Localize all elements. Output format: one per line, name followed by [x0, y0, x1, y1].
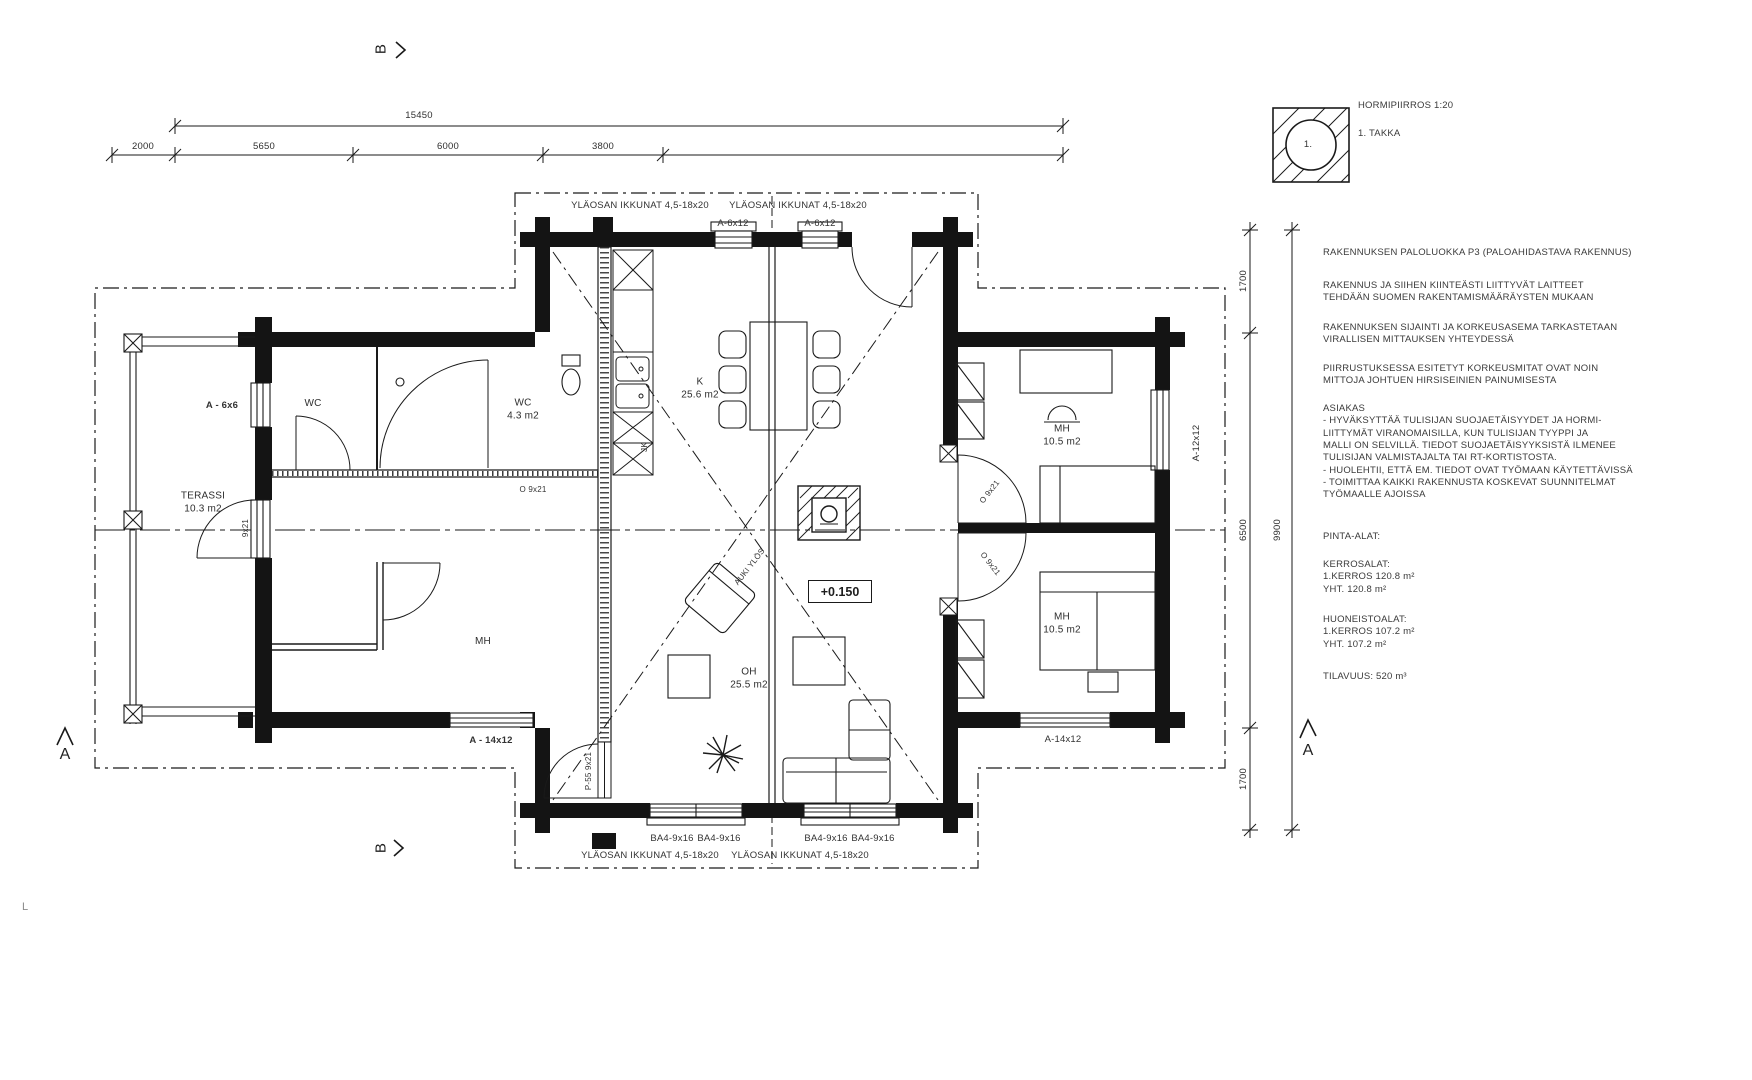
window-label-a14x12-left: A - 14x12 — [469, 735, 512, 747]
window-label-a14x12-right: A-14x12 — [1045, 734, 1082, 746]
section-marker-arrows — [57, 42, 1316, 856]
upper-windows-note-top-right: YLÄOSAN IKKUNAT 4,5-18x20 — [729, 200, 867, 212]
section-a-left-label: A — [60, 745, 71, 765]
section-a-right-arrow — [1300, 720, 1316, 738]
section-b-bottom-arrow — [394, 840, 403, 856]
dimension-lines-right — [1242, 222, 1300, 838]
room-label-wc1: WC — [304, 398, 321, 411]
dim-seg-6500: 6500 — [1238, 519, 1250, 541]
room-label-mh-left: MH — [475, 636, 491, 649]
dim-seg-1700-bottom: 1700 — [1238, 768, 1250, 790]
section-b-top-arrow — [396, 42, 405, 58]
door-label-o9x21-wc: O 9x21 — [520, 485, 547, 495]
chimney-detail-title: HORMIPIIRROS 1:20 — [1358, 100, 1453, 112]
room-label-mh-bottom-right: MH10.5 m2 — [1043, 612, 1081, 637]
window-label-ba4-4: BA4-9x16 — [851, 833, 894, 845]
window-label-a6x6: A - 6x6 — [206, 400, 238, 412]
note-heights: PIIRRUSTUKSESSA ESITETYT KORKEUSMITAT OV… — [1323, 363, 1653, 388]
dim-seg-3800: 3800 — [592, 141, 614, 153]
fridge-label: JK — [640, 442, 650, 452]
section-b-top-label: B — [373, 44, 392, 54]
dim-seg-6000: 6000 — [437, 141, 459, 153]
dim-seg-2000: 2000 — [132, 141, 154, 153]
section-b-bottom-label: B — [373, 843, 392, 853]
fireplace — [798, 486, 860, 540]
note-client: ASIAKAS - HYVÄKSYTTÄÄ TULISIJAN SUOJAETÄ… — [1323, 403, 1653, 502]
note-apartment-area: HUONEISTOALAT: 1.KERROS 107.2 m² YHT. 10… — [1323, 614, 1653, 651]
dining-set — [719, 322, 840, 430]
note-volume: TILAVUUS: 520 m³ — [1323, 671, 1653, 683]
room-label-mh-top-right: MH10.5 m2 — [1043, 424, 1081, 449]
chimney-number: 1. — [1304, 139, 1312, 151]
dimension-lines-top — [106, 118, 1069, 163]
room-label-kitchen: K25.6 m2 — [681, 377, 719, 402]
note-floor-area: KERROSALAT: 1.KERROS 120.8 m² YHT. 120.8… — [1323, 559, 1653, 596]
door-label-p55: P-55 9x21 — [584, 752, 594, 790]
window-label-a6x12-2: A-6x12 — [804, 218, 835, 230]
level-marker: +0.150 — [808, 580, 872, 603]
dim-seg-5650: 5650 — [253, 141, 275, 153]
floor-plan-sheet: 15450 2000 5650 6000 3800 1700 6500 1700… — [0, 0, 1752, 1080]
upper-windows-note-bottom-right: YLÄOSAN IKKUNAT 4,5-18x20 — [731, 850, 869, 862]
window-label-ba4-2: BA4-9x16 — [697, 833, 740, 845]
chimney-detail-item: 1. TAKKA — [1358, 128, 1400, 140]
section-a-right-label: A — [1303, 741, 1314, 761]
note-survey: RAKENNUKSEN SIJAINTI JA KORKEUSASEMA TAR… — [1323, 322, 1653, 347]
section-a-left-arrow — [57, 728, 73, 745]
room-label-wc2: WC4.3 m2 — [507, 398, 539, 423]
upper-windows-note-top-left: YLÄOSAN IKKUNAT 4,5-18x20 — [571, 200, 709, 212]
note-areas-heading: PINTA-ALAT: — [1323, 531, 1653, 543]
door-label-terrace: 9x21 — [241, 519, 251, 537]
stray-mark: L — [22, 901, 28, 913]
dim-total-width: 15450 — [405, 110, 432, 122]
window-label-a12x12: A-12x12 — [1191, 425, 1203, 462]
window-label-a6x12-1: A-6x12 — [717, 218, 748, 230]
terrace — [124, 334, 255, 724]
note-fire-class: RAKENNUKSEN PALOLUOKKA P3 (PALOAHIDASTAV… — [1323, 247, 1653, 259]
dim-total-height: 9900 — [1272, 519, 1284, 541]
window-label-ba4-1: BA4-9x16 — [650, 833, 693, 845]
window-label-ba4-3: BA4-9x16 — [804, 833, 847, 845]
room-label-living: OH25.5 m2 — [730, 667, 768, 692]
dim-seg-1700-top: 1700 — [1238, 270, 1250, 292]
upper-windows-note-bottom-left: YLÄOSAN IKKUNAT 4,5-18x20 — [581, 850, 719, 862]
note-regulations: RAKENNUS JA SIIHEN KIINTEÄSTI LIITTYVÄT … — [1323, 280, 1653, 305]
room-label-terassi: TERASSI10.3 m2 — [181, 491, 225, 516]
